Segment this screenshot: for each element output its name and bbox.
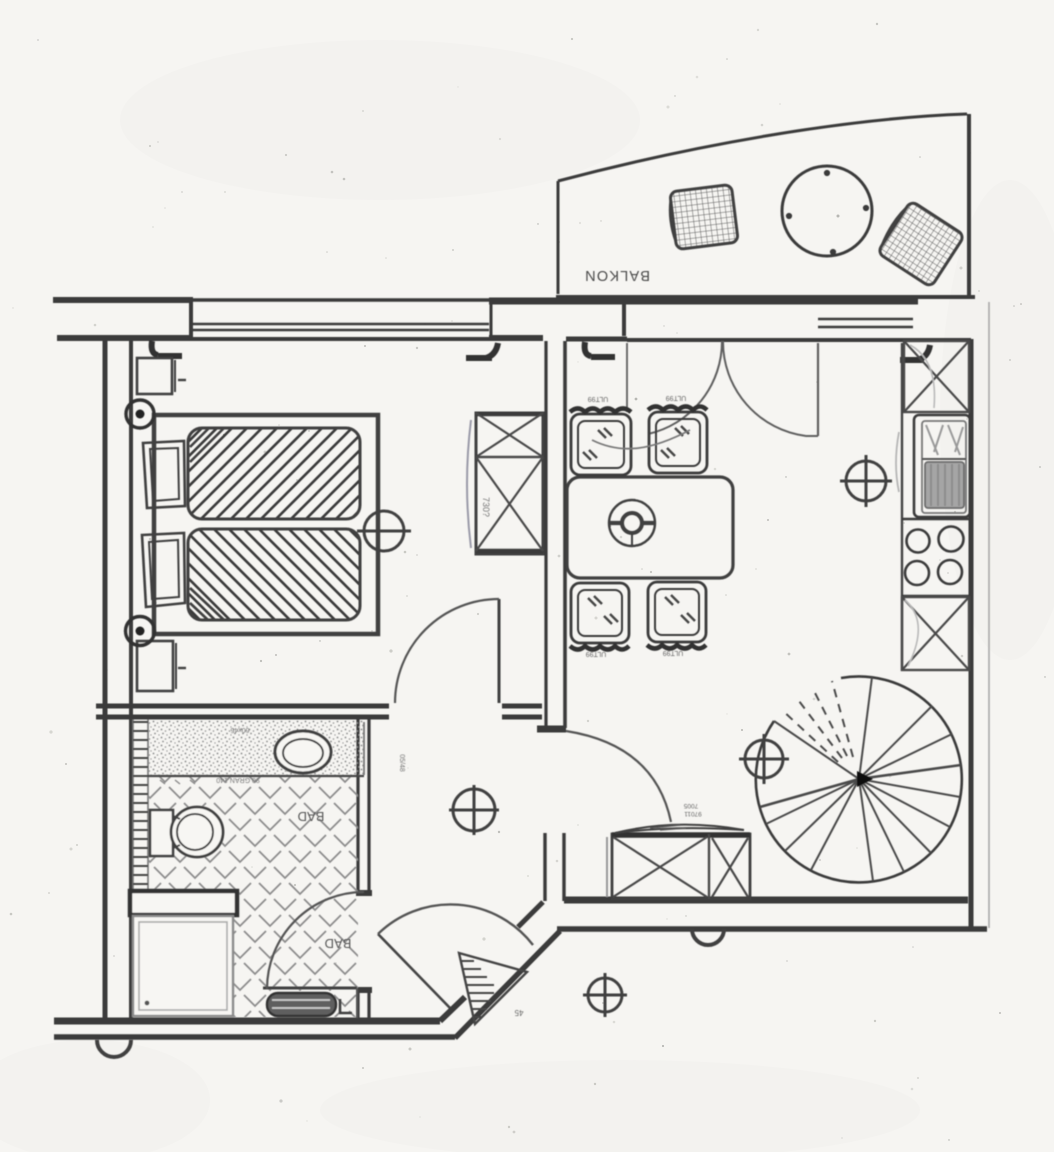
svg-text:BALKON: BALKON	[584, 267, 650, 283]
svg-text:97011: 97011	[684, 810, 702, 817]
svg-text:BAD: BAD	[325, 936, 352, 951]
svg-text:60x45: 60x45	[230, 726, 249, 733]
svg-text:05/48: 05/48	[398, 754, 405, 772]
svg-text:ULT99: ULT99	[588, 395, 609, 402]
svg-text:ULT99: ULT99	[666, 394, 687, 401]
svg-text:45: 45	[514, 1008, 523, 1017]
svg-text:ULT99: ULT99	[663, 649, 684, 656]
svg-text:7005: 7005	[683, 802, 698, 809]
svg-text:730?: 730?	[481, 497, 491, 517]
svg-text:BAD: BAD	[298, 809, 325, 824]
svg-text:90 GRAN 140: 90 GRAN 140	[216, 776, 260, 783]
svg-text:ULT99: ULT99	[586, 650, 607, 657]
